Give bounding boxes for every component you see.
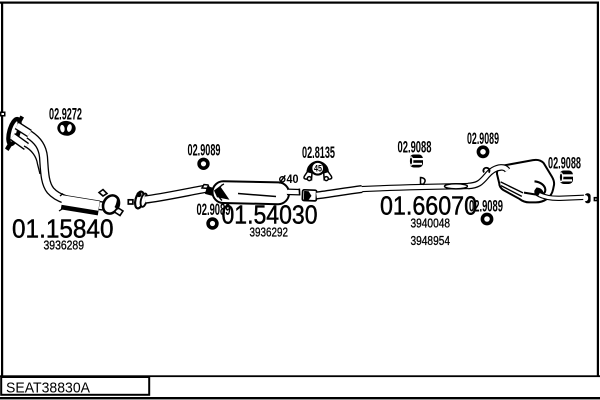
- svg-text:3940048: 3940048: [411, 217, 451, 231]
- svg-text:02.9089: 02.9089: [188, 142, 221, 160]
- svg-text:02.9088: 02.9088: [398, 139, 432, 157]
- svg-text:02.9088: 02.9088: [548, 155, 581, 173]
- svg-text:3948954: 3948954: [411, 234, 451, 248]
- svg-text:02.9089: 02.9089: [467, 130, 499, 148]
- svg-text:SEAT38830A: SEAT38830A: [6, 380, 90, 396]
- svg-text:02.8135: 02.8135: [302, 144, 335, 162]
- svg-text:02.9272: 02.9272: [49, 106, 82, 124]
- svg-text:40: 40: [287, 174, 299, 186]
- svg-text:3936292: 3936292: [250, 225, 289, 239]
- svg-text:45: 45: [314, 163, 322, 173]
- svg-text:3936289: 3936289: [44, 238, 85, 252]
